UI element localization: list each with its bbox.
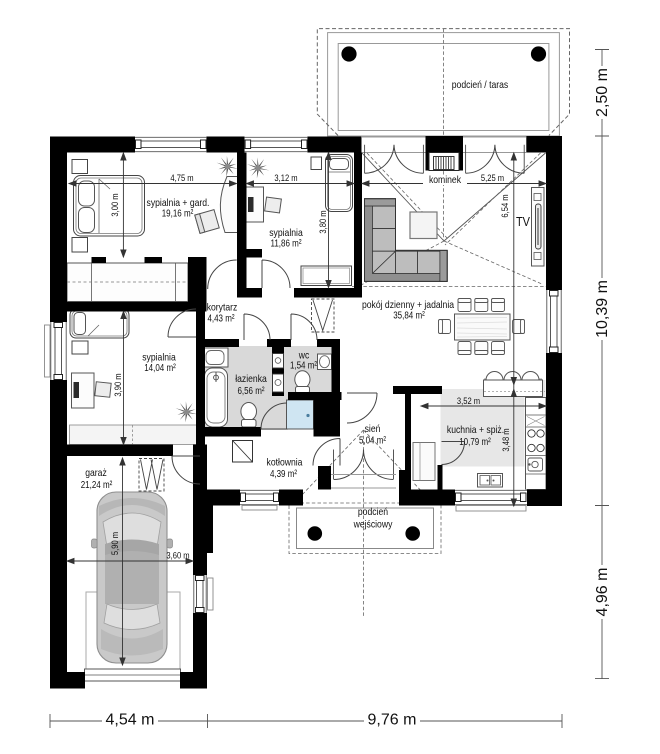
svg-text:4,96 m: 4,96 m: [594, 568, 611, 617]
svg-text:35,84 m²: 35,84 m²: [393, 311, 425, 322]
svg-text:podcień: podcień: [358, 506, 388, 518]
svg-text:sypialnia + gard.: sypialnia + gard.: [147, 197, 210, 209]
svg-text:4,43 m²: 4,43 m²: [207, 314, 235, 325]
svg-text:3,12 m: 3,12 m: [274, 173, 297, 184]
svg-text:21,24 m²: 21,24 m²: [81, 480, 113, 491]
svg-text:6,56 m²: 6,56 m²: [237, 386, 265, 397]
svg-text:sypialnia: sypialnia: [269, 227, 303, 239]
svg-text:3,00 m: 3,00 m: [110, 193, 121, 216]
svg-text:10,39 m: 10,39 m: [594, 280, 611, 338]
svg-text:sień: sień: [365, 423, 381, 435]
svg-text:korytarz: korytarz: [207, 302, 238, 314]
svg-text:łazienka: łazienka: [235, 373, 267, 385]
svg-text:19,16 m²: 19,16 m²: [162, 209, 194, 220]
svg-text:6,54 m: 6,54 m: [500, 194, 511, 217]
svg-text:3,90 m: 3,90 m: [113, 373, 124, 396]
svg-text:wejściowy: wejściowy: [353, 519, 393, 531]
svg-text:3,60 m: 3,60 m: [166, 551, 189, 562]
svg-text:10,79 m²: 10,79 m²: [459, 437, 491, 448]
svg-text:3,80 m: 3,80 m: [318, 210, 329, 233]
svg-text:5,90 m: 5,90 m: [110, 532, 121, 555]
svg-text:kominek: kominek: [429, 174, 462, 186]
svg-text:14,04 m²: 14,04 m²: [144, 363, 176, 374]
svg-text:podcień / taras: podcień / taras: [452, 79, 509, 91]
svg-text:TV: TV: [516, 214, 530, 229]
svg-text:sypialnia: sypialnia: [142, 352, 176, 364]
svg-text:garaż: garaż: [85, 467, 107, 479]
svg-text:pokój dzienny + jadalnia: pokój dzienny + jadalnia: [362, 299, 454, 311]
svg-text:3,52 m: 3,52 m: [457, 396, 480, 407]
svg-text:9,76 m: 9,76 m: [368, 712, 417, 729]
svg-text:11,86 m²: 11,86 m²: [271, 239, 303, 250]
svg-text:5,04 m²: 5,04 m²: [359, 436, 387, 447]
svg-text:1,54 m²: 1,54 m²: [290, 361, 318, 372]
svg-text:kuchnia + spiż.: kuchnia + spiż.: [447, 424, 504, 436]
svg-text:4,54 m: 4,54 m: [106, 712, 155, 729]
svg-text:2,50 m: 2,50 m: [594, 68, 611, 117]
svg-text:kotłownia: kotłownia: [267, 457, 303, 469]
svg-text:5,25 m: 5,25 m: [481, 173, 504, 184]
svg-text:4,75 m: 4,75 m: [170, 173, 193, 184]
svg-text:4,39 m²: 4,39 m²: [270, 469, 298, 480]
